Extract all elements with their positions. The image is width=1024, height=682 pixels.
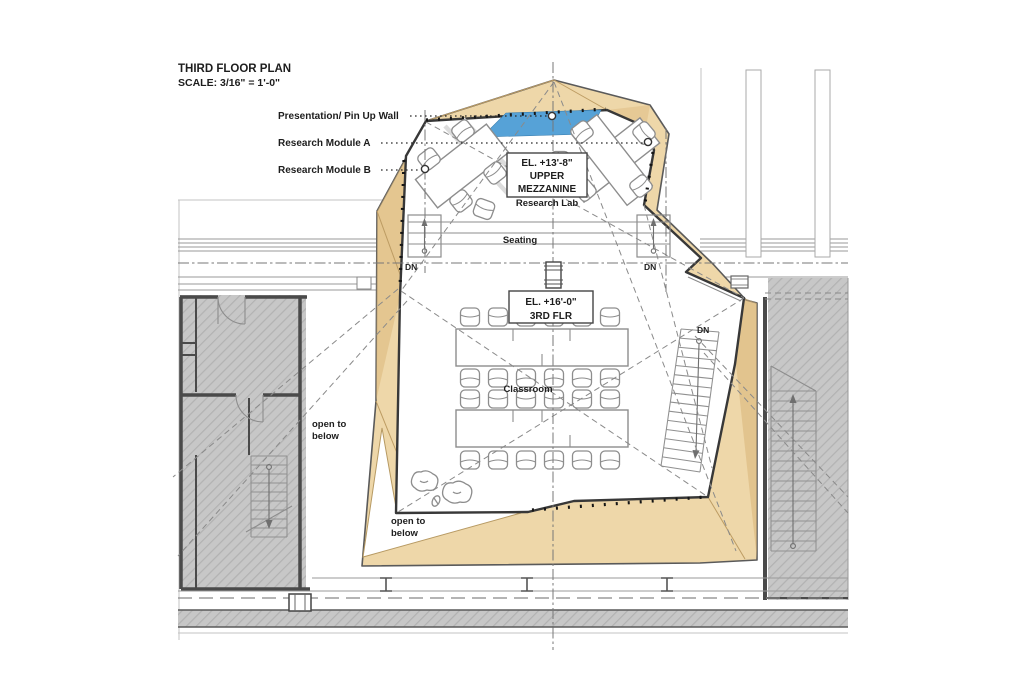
- scale-note: SCALE: 3/16" = 1'-0": [178, 77, 280, 89]
- column-detail: [289, 594, 311, 611]
- leader-label-module-b: Research Module B: [278, 165, 371, 176]
- leader-label-pin-up-wall: Presentation/ Pin Up Wall: [278, 111, 399, 122]
- leader-node-pin-up-wall: [548, 112, 555, 119]
- column-symbol: [731, 276, 748, 288]
- page-title: THIRD FLOOR PLAN: [178, 63, 291, 75]
- classroom-label: Classroom: [503, 384, 552, 395]
- open-to-below-1-line2: below: [312, 431, 340, 442]
- seating-label: Seating: [503, 235, 538, 246]
- right-building: [765, 278, 848, 600]
- open-to-below-2-line1: open to: [391, 516, 425, 527]
- mezzanine-elevation: EL. +13'-8": [521, 158, 573, 169]
- open-to-below-2-line2: below: [391, 528, 419, 539]
- steel-column-symbol: [521, 578, 533, 591]
- context-column: [357, 277, 371, 289]
- steel-column-symbol: [661, 578, 673, 591]
- leader-node-module-b: [421, 165, 428, 172]
- dn-label-left: DN: [405, 262, 417, 272]
- leader-label-module-a: Research Module A: [278, 138, 370, 149]
- third-floor-elevation: EL. +16'-0": [525, 297, 577, 308]
- research-lab-label: Research Lab: [516, 198, 579, 209]
- floor-plan-page: THIRD FLOOR PLAN SCALE: 3/16" = 1'-0" Pr…: [0, 0, 1024, 682]
- left-building: [180, 295, 310, 589]
- third-floor-name: 3RD FLR: [530, 311, 573, 322]
- dn-label-stair: DN: [697, 325, 709, 335]
- mezzanine-name-2: MEZZANINE: [518, 184, 577, 195]
- leader-node-module-a: [644, 138, 651, 145]
- curtain-wall-mullion: [746, 70, 761, 257]
- curtain-wall-mullion: [815, 70, 830, 257]
- dn-label-right: DN: [644, 262, 656, 272]
- floor-plan-drawing: THIRD FLOOR PLAN SCALE: 3/16" = 1'-0" Pr…: [0, 0, 1024, 682]
- steel-column-symbol: [380, 578, 392, 591]
- mezzanine-name-1: UPPER: [530, 171, 565, 182]
- open-to-below-1-line1: open to: [312, 419, 346, 430]
